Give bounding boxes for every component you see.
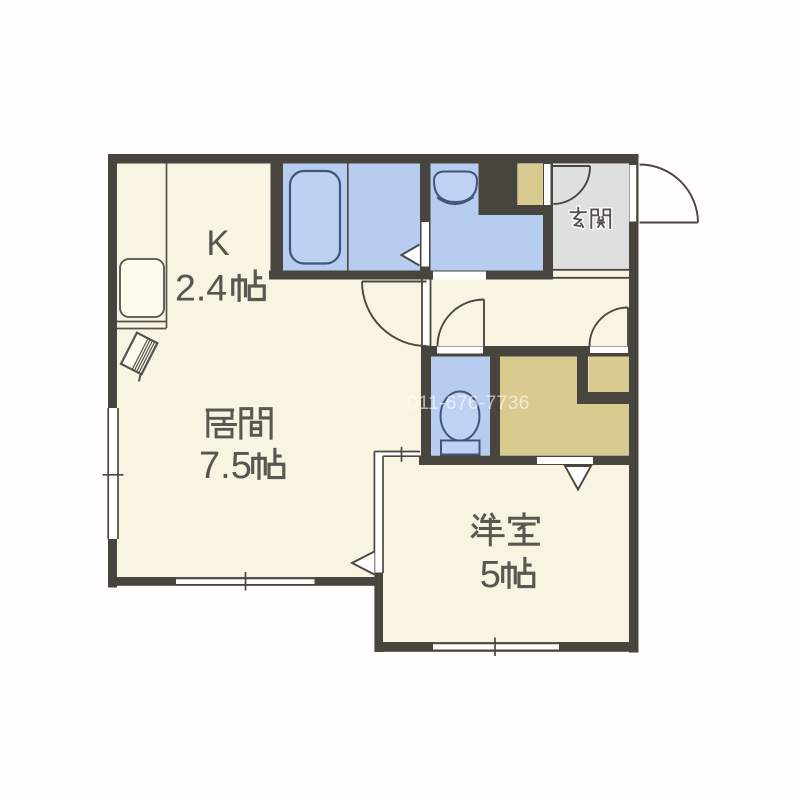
svg-text:K: K bbox=[206, 224, 229, 263]
svg-text:011-676-7736: 011-676-7736 bbox=[407, 392, 529, 414]
svg-text:7.5: 7.5 bbox=[199, 445, 252, 487]
svg-text:2.4: 2.4 bbox=[175, 267, 227, 309]
svg-text:5: 5 bbox=[480, 554, 501, 596]
